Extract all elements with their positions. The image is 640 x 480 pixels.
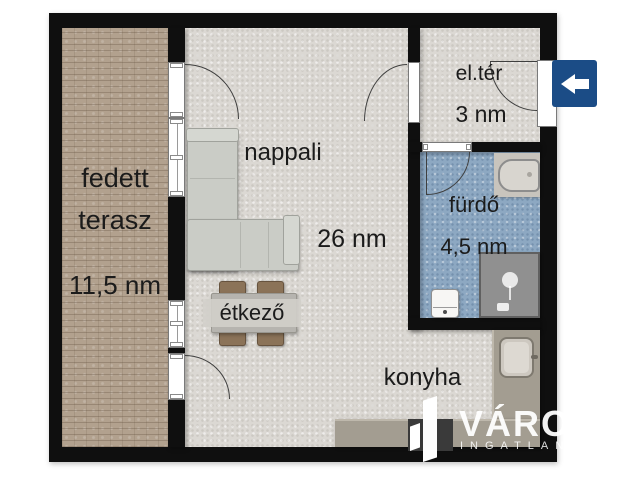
- terrace-area-label: 11,5 nm: [58, 270, 172, 301]
- bathroom-area-label: 4,5 nm: [413, 234, 535, 260]
- watermark-building-icon: [423, 396, 437, 462]
- watermark-brand-text: VÁRO: [459, 403, 571, 445]
- door-jamb: [170, 394, 183, 399]
- window-divider: [170, 119, 183, 124]
- bathtub: [498, 159, 540, 192]
- dining-chair: [219, 331, 246, 346]
- toilet-seat-line: [433, 307, 457, 308]
- watermark-building-icon: [410, 423, 420, 451]
- door-terrace-living: [168, 62, 185, 118]
- sofa-seam: [240, 222, 241, 268]
- window-divider: [170, 155, 183, 160]
- door-jamb: [170, 112, 183, 117]
- window-divider: [170, 342, 183, 347]
- window-terrace-lower: [168, 300, 185, 348]
- shower-head-icon: [502, 272, 518, 288]
- door-jamb: [170, 63, 183, 68]
- wall-bathroom-kitchen: [408, 318, 540, 330]
- door-leaf: [426, 152, 427, 195]
- door-jamb: [423, 144, 428, 150]
- dining-label: étkező: [203, 299, 301, 327]
- sofa-seam: [268, 222, 269, 268]
- entrance-arrow-sign: [552, 60, 597, 107]
- shower-handle: [497, 303, 509, 311]
- entrance-arrow-shaft: [574, 79, 589, 89]
- terrace-label-line2: terasz: [62, 205, 168, 236]
- living-area-label: 26 nm: [312, 225, 392, 254]
- kitchen-sink-basin: [504, 342, 529, 373]
- door-jamb: [170, 354, 183, 359]
- sofa-seam: [190, 178, 235, 179]
- window-divider: [170, 191, 183, 196]
- door-entry-bathroom: [422, 142, 472, 152]
- window-terrace-upper: [168, 118, 185, 197]
- floor-plan-image: fedett terasz 11,5 nm nappali 26 nm étke…: [0, 0, 640, 480]
- entry-label: el.tér: [420, 62, 538, 86]
- sofa-armrest-right: [283, 215, 300, 265]
- living-room-label: nappali: [228, 139, 338, 167]
- kitchen-label: konyha: [375, 364, 470, 392]
- door-living-entry: [408, 62, 420, 123]
- door-jamb: [466, 144, 471, 150]
- entry-area-label: 3 nm: [420, 101, 542, 128]
- terrace-label-line1: fedett: [62, 163, 168, 194]
- dining-chair: [257, 331, 284, 346]
- toilet-flush-button: [443, 310, 447, 314]
- door-terrace-dining: [168, 353, 185, 400]
- kitchen-faucet: [531, 355, 538, 359]
- window-divider: [170, 301, 183, 306]
- window-divider: [170, 321, 183, 326]
- watermark-subtitle-text: INGATLAN: [460, 440, 570, 452]
- entrance-arrow-icon: [561, 74, 575, 94]
- shower-stem: [509, 286, 511, 300]
- bathroom-label: fürdő: [415, 192, 533, 218]
- bathtub-drain: [527, 172, 532, 177]
